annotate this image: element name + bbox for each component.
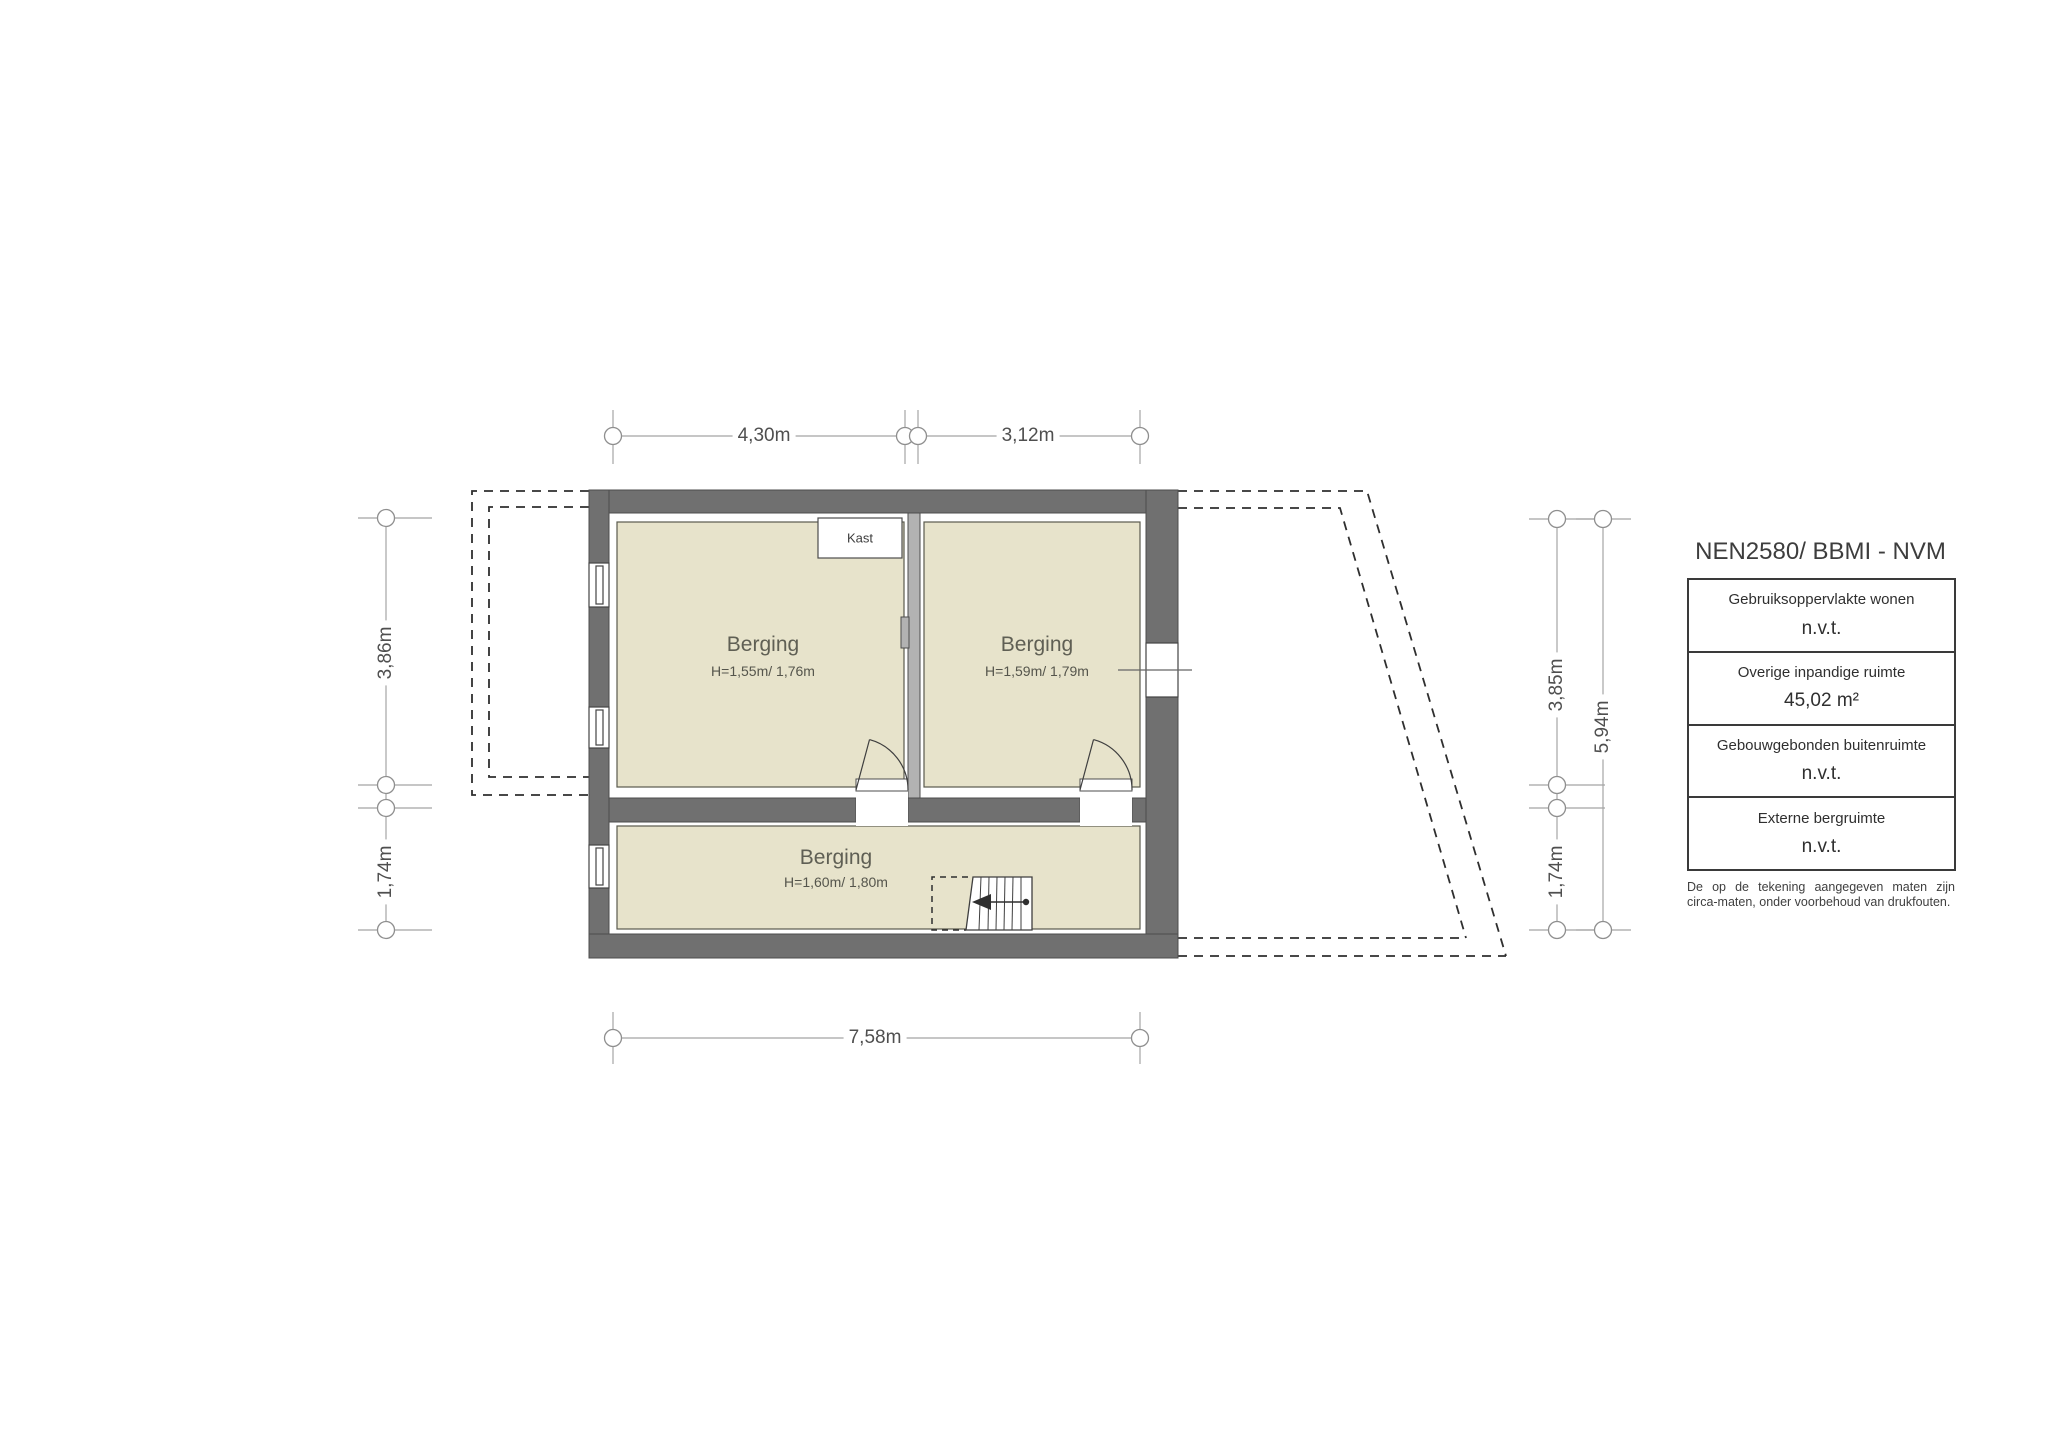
legend-row-value: n.v.t. bbox=[1802, 836, 1842, 858]
dashed-outline-left bbox=[472, 491, 589, 795]
legend-row-value: 45,02 m² bbox=[1784, 690, 1859, 712]
dim-left-lower: 1,74m bbox=[375, 840, 397, 905]
legend-row-label: Externe bergruimte bbox=[1758, 810, 1886, 827]
wall-top bbox=[589, 490, 1178, 513]
wall-bottom bbox=[589, 934, 1178, 958]
legend-row-externe-bergruimte: Externe bergruimte n.v.t. bbox=[1689, 798, 1954, 869]
room-floors bbox=[617, 522, 1140, 929]
dim-bottom: 7,58m bbox=[844, 1027, 907, 1049]
legend-disclaimer: De op de tekening aangegeven maten zijn … bbox=[1687, 880, 1955, 910]
legend-row-label: Overige inpandige ruimte bbox=[1738, 664, 1906, 681]
dim-right-total: 5,94m bbox=[1592, 695, 1614, 760]
room-bottom-height: H=1,60m/ 1,80m bbox=[784, 874, 888, 890]
legend-row-value: n.v.t. bbox=[1802, 618, 1842, 640]
room-bottom-label: Berging bbox=[800, 846, 872, 870]
legend-row-value: n.v.t. bbox=[1802, 763, 1842, 785]
dim-right-upper: 3,85m bbox=[1546, 653, 1568, 718]
legend-table: Gebruiksoppervlakte wonen n.v.t. Overige… bbox=[1687, 578, 1956, 871]
dim-top-right: 3,12m bbox=[997, 425, 1060, 447]
legend-title: NEN2580/ BBMI - NVM bbox=[1687, 538, 1954, 566]
dim-left-upper: 3,86m bbox=[375, 621, 397, 686]
closet-label: Kast bbox=[847, 531, 873, 546]
legend-row-overige-inpandige: Overige inpandige ruimte 45,02 m² bbox=[1689, 653, 1954, 726]
legend-row-gebruiksoppervlakte: Gebruiksoppervlakte wonen n.v.t. bbox=[1689, 580, 1954, 653]
legend-disclaimer-line2: circa-maten, onder voorbehoud van drukfo… bbox=[1687, 895, 1955, 910]
room-upper-left-height: H=1,55m/ 1,76m bbox=[711, 663, 815, 679]
room-upper-right-label: Berging bbox=[1001, 633, 1073, 657]
legend-row-label: Gebruiksoppervlakte wonen bbox=[1729, 591, 1915, 608]
room-upper-left-label: Berging bbox=[727, 633, 799, 657]
legend-row-label: Gebouwgebonden buitenruimte bbox=[1717, 737, 1926, 754]
legend-row-gebouwgebonden: Gebouwgebonden buitenruimte n.v.t. bbox=[1689, 726, 1954, 799]
dim-top-left: 4,30m bbox=[733, 425, 796, 447]
legend-disclaimer-line1: De op de tekening aangegeven maten zijn bbox=[1687, 880, 1955, 895]
window-upper-left-1 bbox=[589, 563, 609, 607]
window-bottom-left bbox=[589, 845, 609, 888]
window-upper-left-2 bbox=[589, 707, 609, 748]
dim-right-lower: 1,74m bbox=[1546, 840, 1568, 905]
wall-right bbox=[1146, 490, 1178, 958]
dashed-outline-right bbox=[1178, 491, 1506, 956]
room-upper-right-height: H=1,59m/ 1,79m bbox=[985, 663, 1089, 679]
floorplan-page: 4,30m 3,12m 7,58m 3,86m 1,74m 3,85m 1,74… bbox=[0, 0, 2048, 1450]
